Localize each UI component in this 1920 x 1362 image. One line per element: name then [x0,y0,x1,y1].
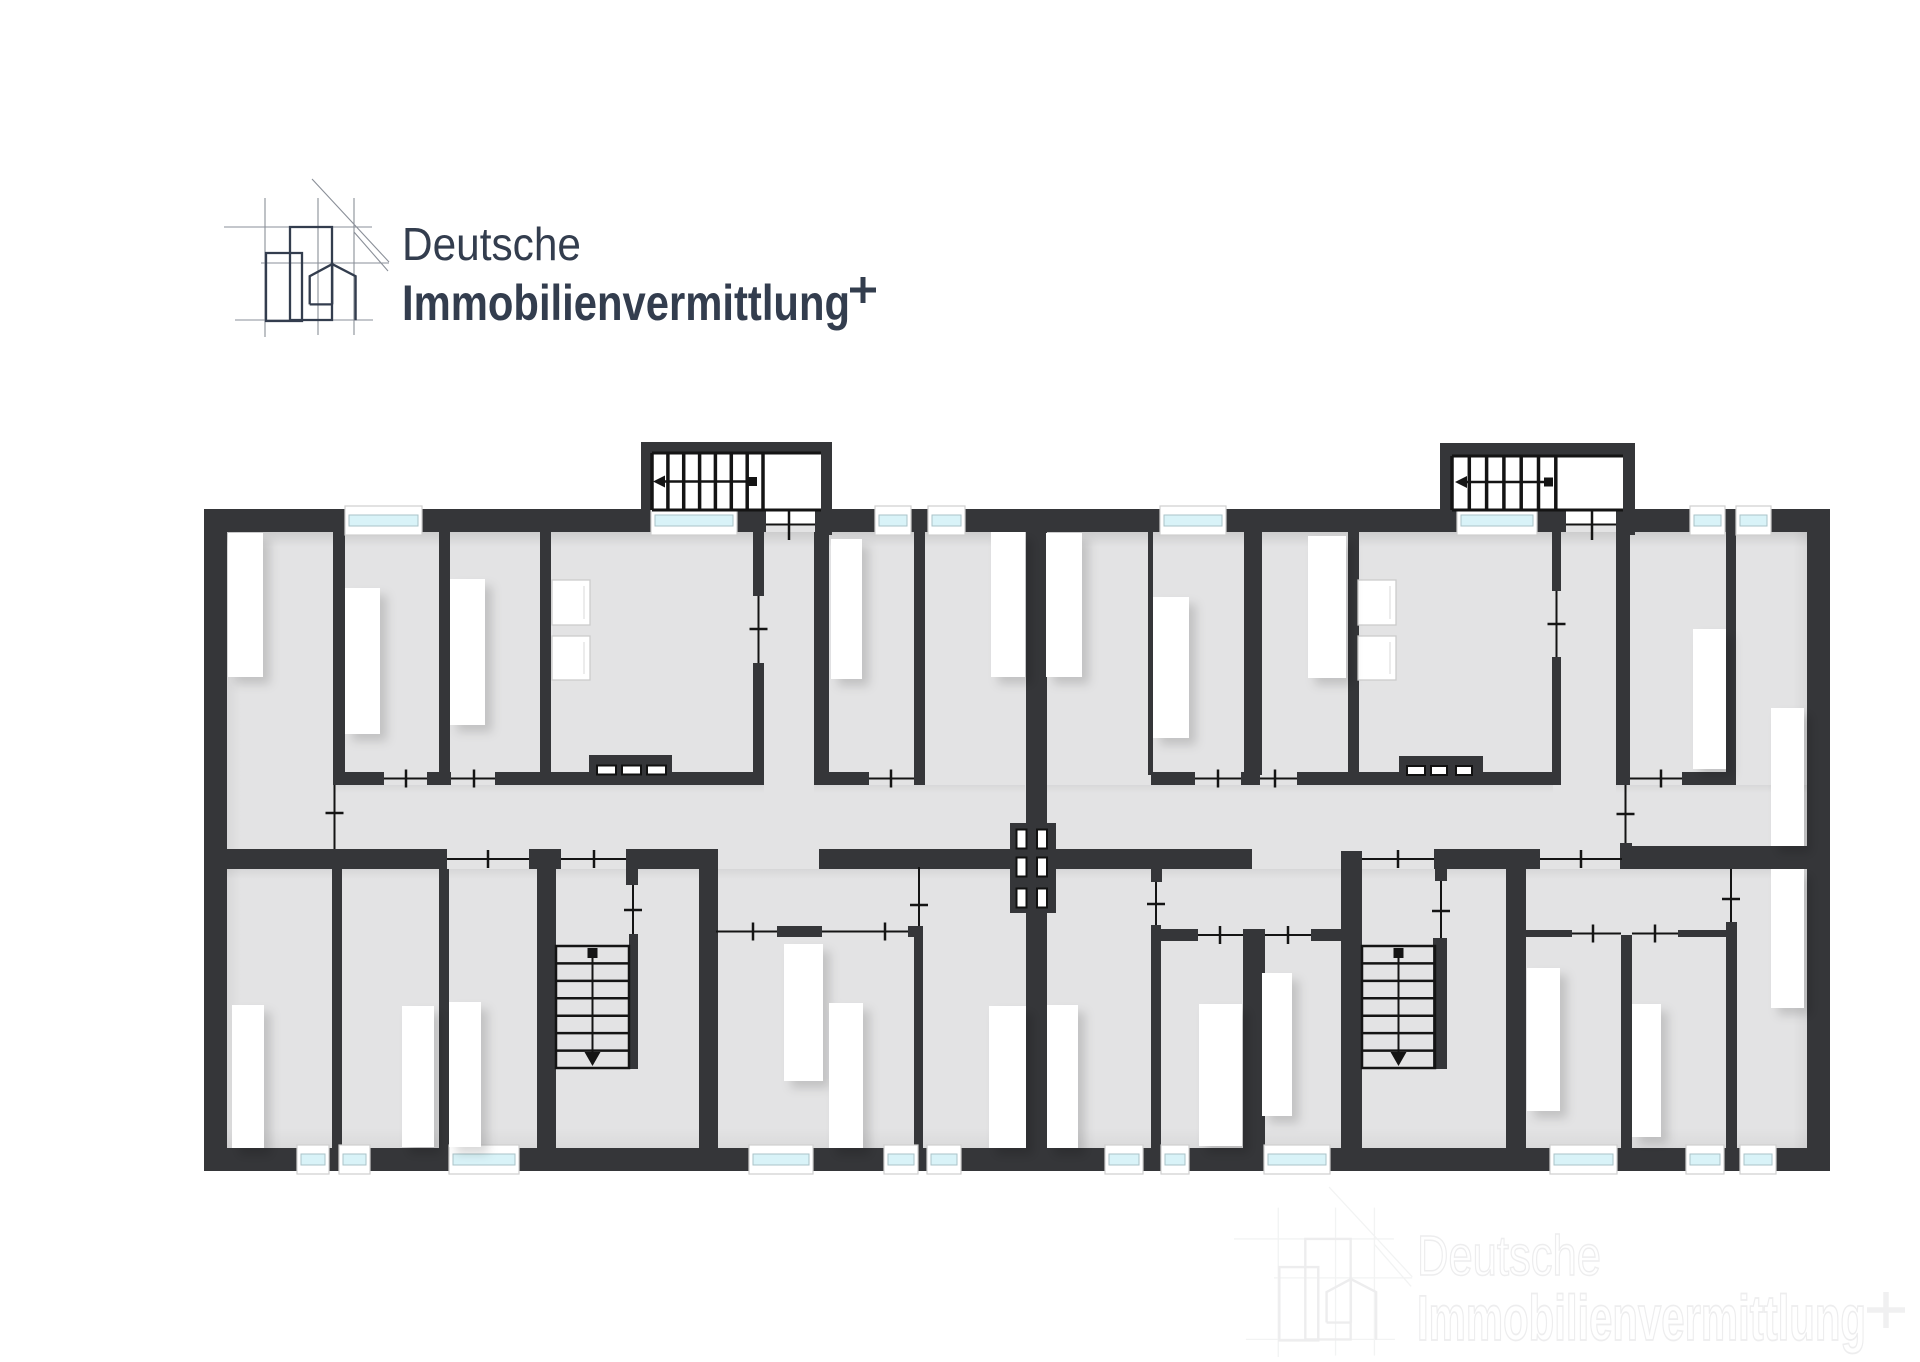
svg-text:Immobilienvermittlung: Immobilienvermittlung [1417,1282,1866,1354]
svg-text:Immobilienvermittlung: Immobilienvermittlung [402,275,850,331]
svg-text:Deutsche: Deutsche [1417,1224,1601,1288]
svg-text:Deutsche: Deutsche [402,218,581,270]
